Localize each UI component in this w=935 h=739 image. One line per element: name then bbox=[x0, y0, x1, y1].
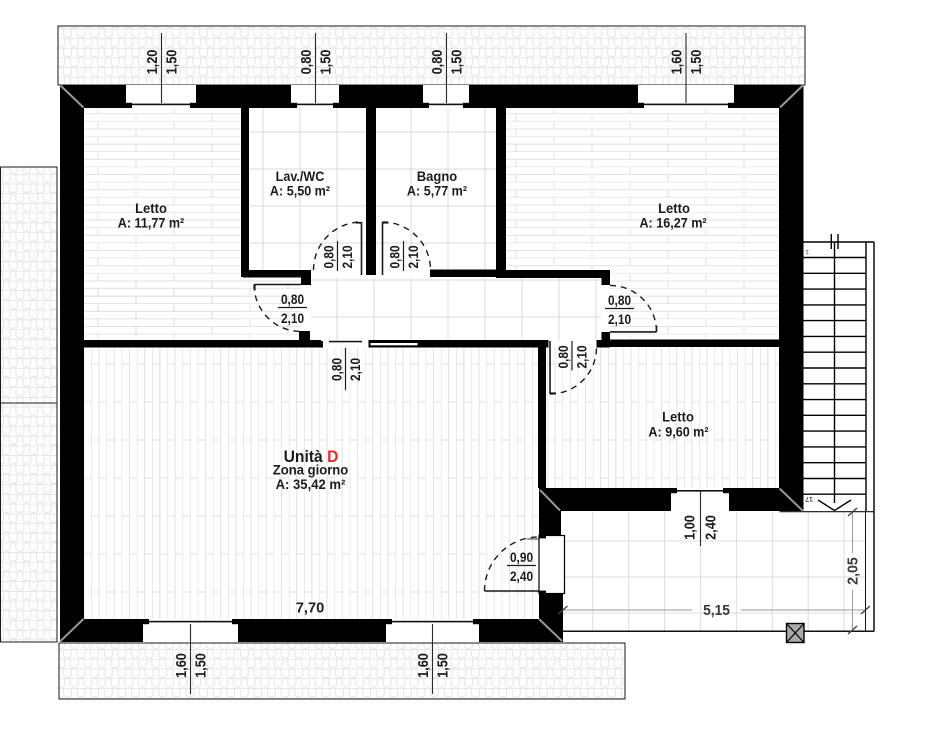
svg-text:1,00: 1,00 bbox=[682, 515, 698, 540]
svg-text:0,80: 0,80 bbox=[321, 245, 337, 268]
svg-text:1,60: 1,60 bbox=[415, 653, 431, 678]
svg-text:0,80: 0,80 bbox=[387, 245, 403, 268]
svg-text:1: 1 bbox=[805, 248, 809, 255]
svg-text:0,90: 0,90 bbox=[510, 549, 533, 565]
svg-text:1,50: 1,50 bbox=[688, 49, 704, 74]
svg-text:2,10: 2,10 bbox=[405, 245, 421, 268]
svg-text:1,20: 1,20 bbox=[144, 49, 160, 74]
svg-text:1,50: 1,50 bbox=[164, 49, 180, 74]
svg-text:Lav./WC: Lav./WC bbox=[276, 168, 325, 184]
svg-text:2,10: 2,10 bbox=[281, 310, 304, 326]
svg-text:0,80: 0,80 bbox=[298, 49, 314, 74]
svg-text:A: 35,42 m²: A: 35,42 m² bbox=[276, 477, 346, 492]
svg-text:0,80: 0,80 bbox=[281, 291, 304, 307]
svg-text:1,60: 1,60 bbox=[173, 653, 189, 678]
svg-text:1,50: 1,50 bbox=[318, 49, 334, 74]
svg-text:7,70: 7,70 bbox=[296, 600, 325, 616]
svg-text:A: 9,60 m²: A: 9,60 m² bbox=[648, 424, 709, 440]
svg-text:2,10: 2,10 bbox=[339, 245, 355, 268]
svg-text:2,05: 2,05 bbox=[845, 557, 861, 585]
svg-text:2,10: 2,10 bbox=[608, 311, 631, 327]
svg-text:2,10: 2,10 bbox=[347, 358, 363, 381]
svg-text:17: 17 bbox=[805, 495, 813, 502]
svg-text:1,50: 1,50 bbox=[193, 653, 209, 678]
svg-text:2,10: 2,10 bbox=[574, 345, 590, 368]
svg-text:0,80: 0,80 bbox=[608, 292, 631, 308]
svg-text:A: 16,27 m²: A: 16,27 m² bbox=[639, 215, 707, 231]
svg-text:5,15: 5,15 bbox=[703, 603, 730, 620]
svg-text:Zona giorno: Zona giorno bbox=[273, 462, 349, 477]
svg-text:Letto: Letto bbox=[658, 201, 690, 217]
svg-text:A: 5,50 m²: A: 5,50 m² bbox=[270, 183, 331, 199]
svg-text:1,50: 1,50 bbox=[435, 653, 451, 678]
svg-text:2,40: 2,40 bbox=[703, 515, 719, 540]
svg-text:1,60: 1,60 bbox=[669, 49, 685, 74]
svg-text:0,80: 0,80 bbox=[329, 358, 345, 381]
svg-text:0,80: 0,80 bbox=[555, 345, 571, 368]
svg-text:0,80: 0,80 bbox=[429, 49, 445, 74]
svg-text:1,50: 1,50 bbox=[449, 49, 465, 74]
svg-text:Letto: Letto bbox=[662, 409, 694, 425]
svg-text:2,40: 2,40 bbox=[510, 568, 533, 584]
svg-text:A: 11,77 m²: A: 11,77 m² bbox=[118, 215, 185, 231]
svg-text:Letto: Letto bbox=[135, 201, 167, 217]
svg-text:Bagno: Bagno bbox=[417, 169, 457, 185]
svg-text:A: 5,77 m²: A: 5,77 m² bbox=[407, 183, 468, 199]
